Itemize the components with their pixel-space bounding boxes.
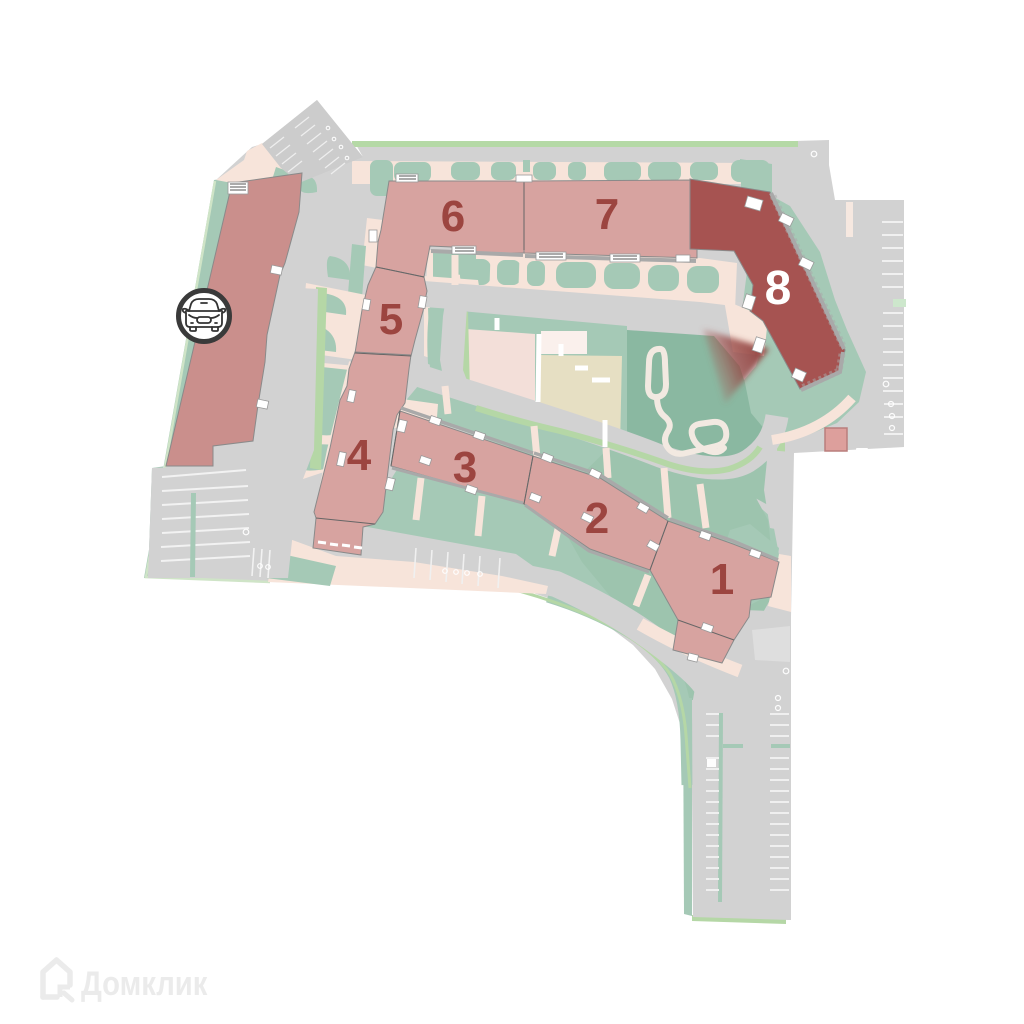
svg-text:3: 3 — [453, 443, 477, 492]
svg-text:5: 5 — [379, 295, 403, 344]
svg-text:2: 2 — [585, 494, 609, 543]
svg-text:Домклик: Домклик — [81, 964, 208, 1003]
svg-text:4: 4 — [347, 431, 372, 480]
svg-text:7: 7 — [595, 190, 619, 239]
svg-text:8: 8 — [765, 262, 792, 315]
svg-text:1: 1 — [710, 555, 734, 604]
svg-text:6: 6 — [441, 192, 465, 241]
